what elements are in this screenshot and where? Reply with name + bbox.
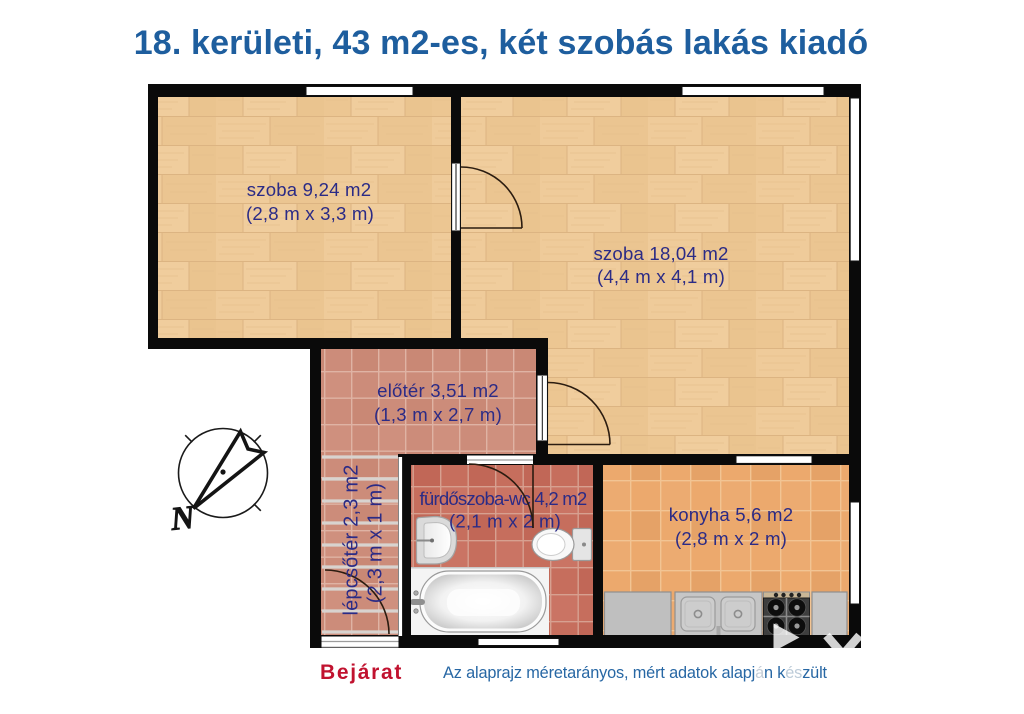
svg-text:(2,3 m x 1 m): (2,3 m x 1 m) [365,483,387,603]
svg-text:(4,4 m x 4,1 m): (4,4 m x 4,1 m) [597,266,725,287]
svg-text:N: N [168,500,198,539]
svg-text:előtér 3,51 m2: előtér 3,51 m2 [377,380,499,401]
svg-text:lépcsőtér 2,3 m2: lépcsőtér 2,3 m2 [341,464,363,615]
svg-text:Bejárat: Bejárat [320,661,403,684]
svg-text:szoba 18,04 m2: szoba 18,04 m2 [593,243,728,264]
svg-text:szoba 9,24 m2: szoba 9,24 m2 [247,179,372,200]
svg-text:Az alaprajz méretarányos, mért: Az alaprajz méretarányos, mért adatok al… [443,664,828,682]
svg-text:(2,8 m x 2 m): (2,8 m x 2 m) [675,528,787,549]
svg-text:konyha 5,6 m2: konyha 5,6 m2 [669,504,794,525]
svg-text:18. kerületi, 43 m2-es, két sz: 18. kerületi, 43 m2-es, két szobás lakás… [134,24,869,62]
svg-text:(2,8 m x 3,3 m): (2,8 m x 3,3 m) [246,203,374,224]
svg-text:(2,1 m x 2 m): (2,1 m x 2 m) [449,511,561,532]
svg-text:fürdőszoba-wc 4,2 m2: fürdőszoba-wc 4,2 m2 [420,488,587,509]
svg-text:(1,3 m x 2,7 m): (1,3 m x 2,7 m) [374,404,502,425]
